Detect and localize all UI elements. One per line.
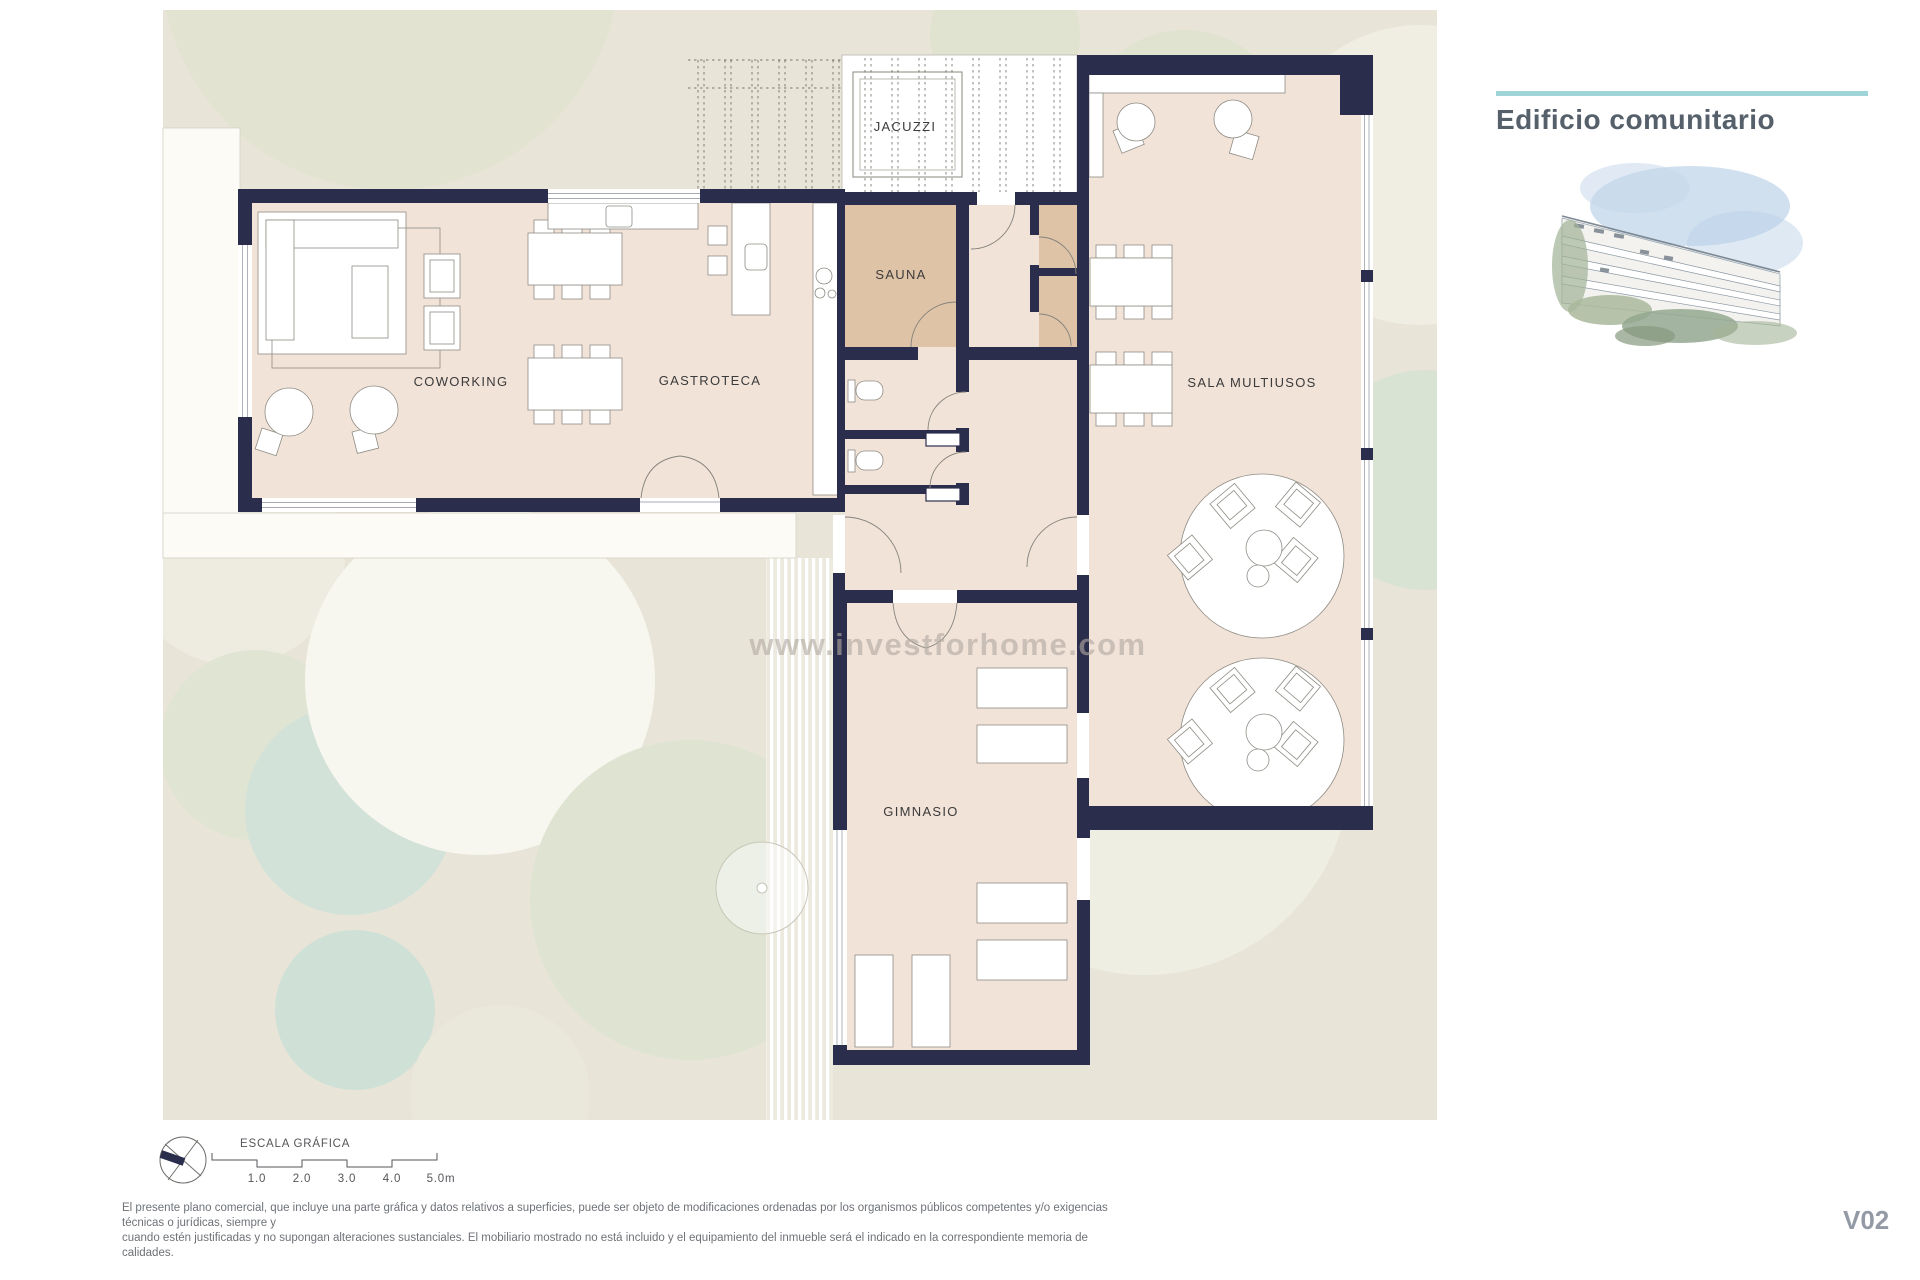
accent-divider-line <box>1496 91 1868 96</box>
label-sala-multiusos: SALA MULTIUSOS <box>1187 375 1316 390</box>
round-chair <box>350 386 398 434</box>
dining-table <box>528 233 622 285</box>
stool <box>708 226 727 245</box>
gym-bench <box>977 883 1067 923</box>
scale-tick: 5.0m <box>427 1173 456 1185</box>
scale-bar: ESCALA GRÁFICA 1.0 2.0 3.0 4.0 5.0m <box>212 1137 455 1185</box>
watermark: www.investforhome.com <box>748 627 1146 662</box>
coffee-table <box>352 266 388 338</box>
page-title: Edificio comunitario <box>1496 104 1775 136</box>
disclaimer-line-1: El presente plano comercial, que incluye… <box>122 1201 1122 1231</box>
version-badge: V02 <box>1843 1205 1889 1236</box>
kitchen-island <box>732 203 770 315</box>
disclaimer-text: El presente plano comercial, que incluye… <box>122 1201 1122 1261</box>
scale-tick: 2.0 <box>293 1173 311 1185</box>
scale-tick: 1.0 <box>248 1173 266 1185</box>
wall-niche <box>926 433 960 446</box>
gym-mat <box>912 955 950 1047</box>
building-illustration <box>1540 158 1806 358</box>
label-sauna: SAUNA <box>875 267 926 282</box>
disclaimer-line-2: cuando estén justificadas y no supongan … <box>122 1231 1122 1261</box>
gym-bench <box>977 940 1067 980</box>
scale-title: ESCALA GRÁFICA <box>240 1137 350 1150</box>
stool <box>708 256 727 275</box>
label-coworking: COWORKING <box>414 374 509 389</box>
scale-tick: 3.0 <box>338 1173 356 1185</box>
gym-bench <box>977 725 1067 763</box>
floor-aseo-2 <box>1039 276 1077 347</box>
kitchen-counter <box>548 203 698 229</box>
label-gastroteca: GASTROTECA <box>659 373 762 388</box>
north-compass-icon <box>160 1137 206 1183</box>
scale-tick: 4.0 <box>383 1173 401 1185</box>
floor-plan-page: JACUZZI SAUNA COWORKING GASTROTECA SALA … <box>0 0 1920 1280</box>
round-chair <box>265 388 313 436</box>
label-gimnasio: GIMNASIO <box>883 804 958 819</box>
toilet <box>848 450 855 472</box>
toilet <box>848 380 855 402</box>
gym-bench <box>977 668 1067 708</box>
armchair <box>424 306 460 350</box>
label-jacuzzi: JACUZZI <box>874 119 937 134</box>
pouf-chair <box>1117 103 1155 141</box>
floor-aseo-1 <box>1039 205 1077 268</box>
gym-mat <box>855 955 893 1047</box>
armchair <box>424 254 460 298</box>
meeting-table <box>1090 258 1172 306</box>
wall-niche <box>926 488 960 501</box>
kitchen-counter <box>813 203 840 495</box>
dining-table <box>528 358 622 410</box>
meeting-table <box>1090 365 1172 413</box>
pouf-chair <box>1214 100 1252 138</box>
sideboard <box>1089 72 1285 93</box>
